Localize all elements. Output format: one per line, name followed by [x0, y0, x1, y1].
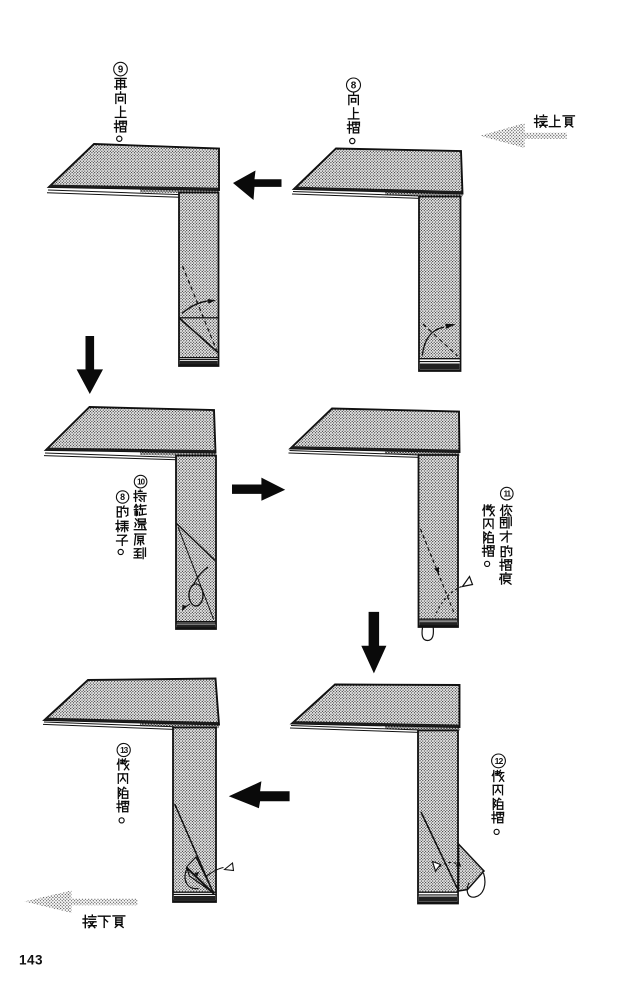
svg-text:12: 12	[495, 756, 504, 766]
svg-text:8: 8	[120, 492, 125, 502]
svg-text:143: 143	[19, 953, 43, 968]
svg-text:9: 9	[118, 65, 124, 76]
svg-text:8: 8	[351, 81, 357, 92]
